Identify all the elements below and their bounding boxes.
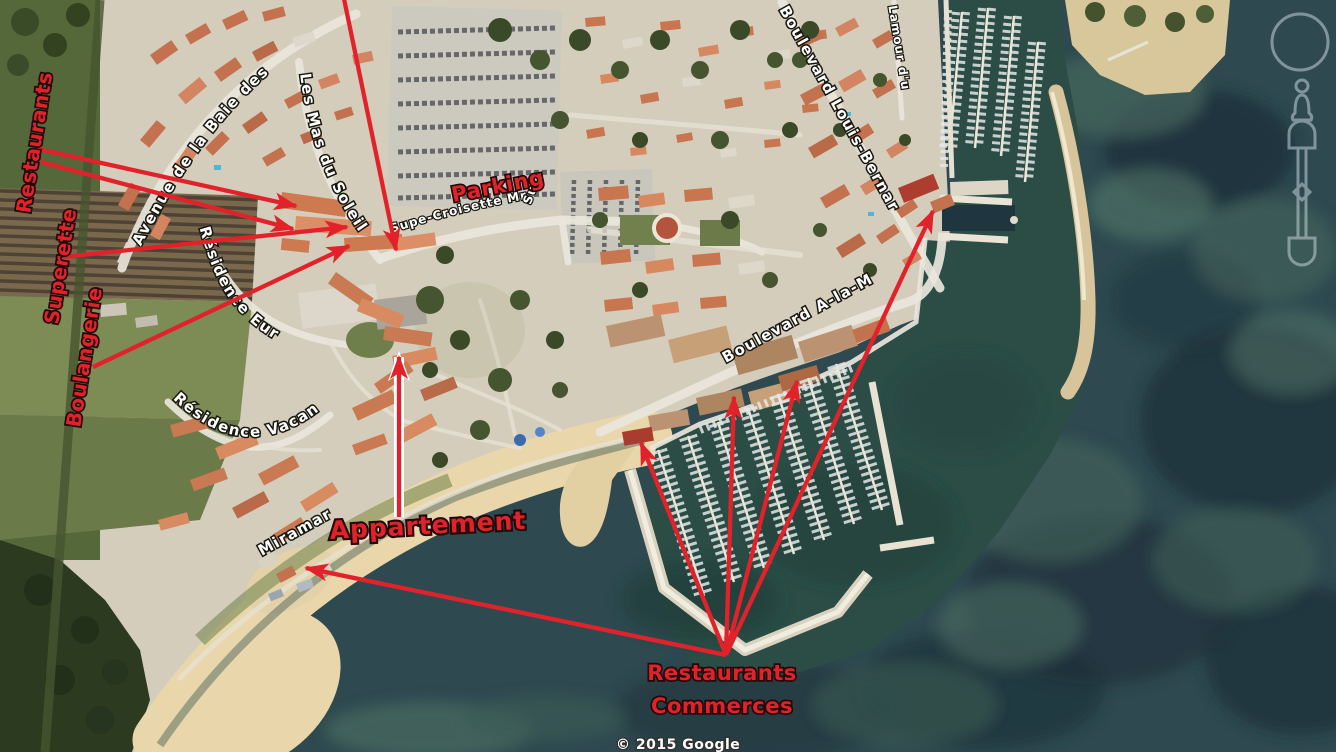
label-restaurants-bottom: Restaurants xyxy=(647,661,797,685)
satellite-map: Avenue de la Baie des Les Mas du Soleil … xyxy=(0,0,1336,752)
google-attribution: © 2015 Google xyxy=(616,737,740,752)
label-commerces: Commerces xyxy=(651,694,793,718)
map-canvas[interactable]: Avenue de la Baie des Les Mas du Soleil … xyxy=(0,0,1336,752)
